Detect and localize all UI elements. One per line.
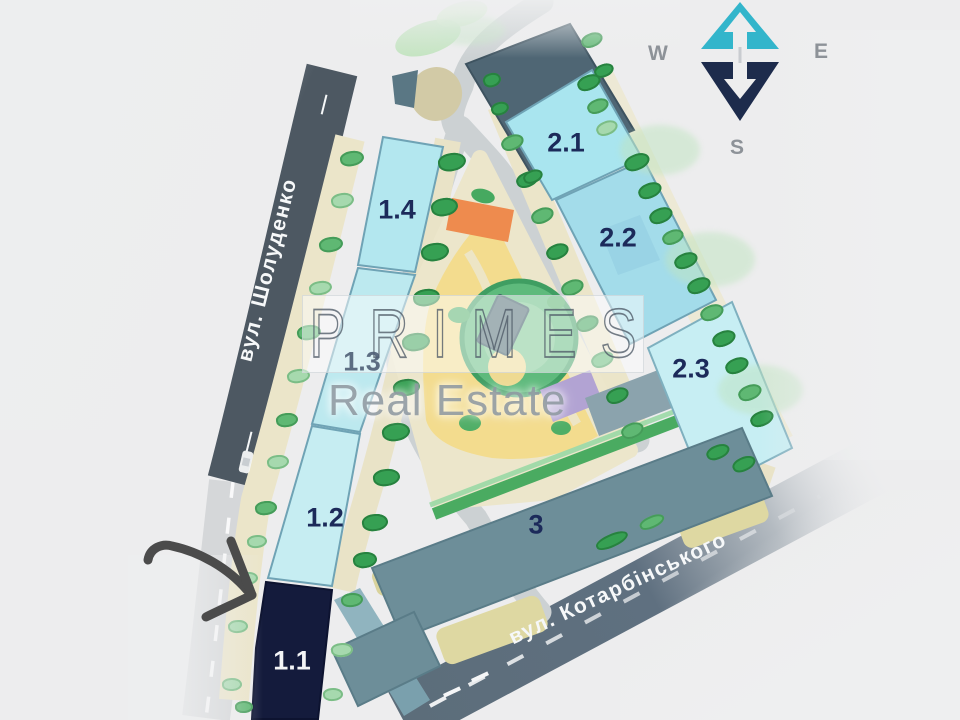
arrow-barb-lower [206,595,252,617]
site-plan-map: PRIMES Real Estate вул. Шолуденко вул. К… [0,0,960,720]
annotation-arrow [0,0,960,720]
